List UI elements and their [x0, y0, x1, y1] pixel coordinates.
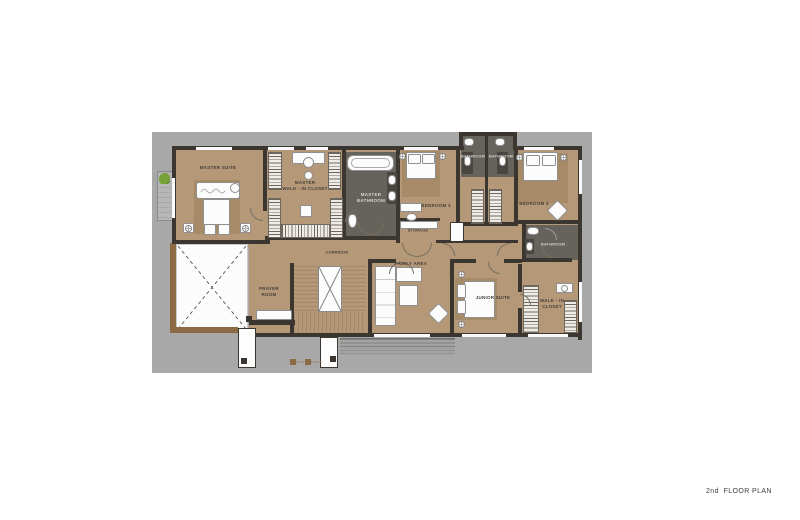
balcony-deck — [340, 338, 455, 355]
wall-segment — [450, 259, 476, 263]
window — [462, 334, 506, 337]
pillow — [542, 155, 556, 166]
lamp-icon — [458, 321, 465, 328]
stair-flight-bottom — [294, 312, 366, 333]
room-label-bedroom-4: BEDROOM 4 — [519, 201, 549, 207]
stair-flight-left — [294, 266, 318, 312]
sink — [526, 242, 533, 251]
room-label-master-bathroom: MASTER BATHROOM — [357, 192, 385, 204]
wall-segment — [249, 320, 295, 325]
window — [196, 147, 232, 150]
lamp-icon — [560, 154, 567, 161]
wall-segment — [246, 316, 252, 322]
room-label-corridor: CORRIDOR — [326, 250, 349, 255]
lamp-icon — [399, 153, 406, 160]
decor-squiggle — [200, 186, 226, 194]
wardrobe — [523, 285, 539, 333]
wall-segment — [172, 240, 270, 244]
pillow — [408, 154, 421, 164]
wardrobe — [268, 152, 282, 190]
wall-segment — [518, 308, 522, 337]
room-label-storage: STORAGE — [408, 228, 428, 233]
lamp-icon — [439, 153, 446, 160]
bathtub-basin — [351, 158, 390, 168]
basin — [561, 285, 568, 292]
wall-segment — [518, 264, 522, 292]
wall-segment — [456, 149, 460, 226]
stool — [406, 213, 417, 221]
lamp-icon — [242, 225, 249, 232]
window — [268, 147, 294, 150]
pillow — [457, 284, 466, 298]
window — [172, 178, 175, 218]
pillow — [422, 154, 435, 164]
sink — [388, 191, 396, 201]
side-table — [230, 183, 240, 193]
master-bed — [203, 199, 230, 225]
stool — [304, 171, 313, 180]
stair-well-x — [318, 266, 342, 312]
toilet — [527, 227, 539, 235]
pillow — [457, 300, 466, 314]
exterior-column — [320, 337, 338, 368]
sofa — [375, 266, 396, 326]
plan-title: 2nd FLOOR PLAN — [706, 488, 772, 495]
window — [374, 334, 430, 337]
wardrobe — [328, 152, 341, 190]
stair-flight-right — [342, 266, 366, 312]
wardrobe — [489, 189, 502, 224]
wall-segment — [368, 259, 372, 337]
pillow — [218, 224, 230, 235]
wardrobe — [268, 198, 281, 238]
room-label-junior-suite: JUNIOR SUITE — [476, 295, 511, 301]
wall-segment — [504, 259, 522, 263]
void-x-marks — [176, 244, 248, 331]
room-label-bathroom-3: BATHROOM — [461, 154, 485, 159]
wood-edge-left — [170, 243, 176, 333]
lamp-icon — [185, 225, 192, 232]
window — [404, 147, 438, 150]
corridor-cabinet — [256, 310, 292, 320]
column-pier — [330, 356, 336, 362]
beam-line — [296, 361, 322, 363]
window — [524, 147, 554, 150]
wall-segment — [522, 258, 572, 262]
wall-segment — [485, 136, 488, 225]
room-label-bathroom-4: BATHROOM — [489, 154, 513, 159]
wardrobe — [330, 198, 343, 238]
linen-cupboard — [450, 222, 464, 242]
wardrobe — [471, 189, 484, 224]
toilet — [495, 138, 505, 146]
wardrobe — [281, 224, 330, 238]
window — [579, 282, 582, 322]
room-label-master-suite: MASTER SUITE — [200, 165, 237, 171]
pillow — [526, 155, 540, 166]
wall-segment — [263, 149, 267, 211]
room-label-master-walk-in-closet: MASTER WALK - IN CLOSET — [282, 180, 327, 192]
wardrobe — [564, 300, 577, 333]
column-pier — [241, 358, 247, 364]
toilet — [464, 138, 474, 146]
wall-segment — [459, 132, 517, 136]
room-label-junior-bathroom: BATHROOM — [541, 242, 565, 247]
wall-segment — [450, 259, 454, 337]
wall-segment — [456, 222, 518, 226]
dressing-table — [400, 203, 422, 212]
window — [528, 334, 568, 337]
room-label-bedroom-3: BEDROOM 3 — [421, 203, 451, 209]
pillow — [204, 224, 216, 235]
sink — [388, 175, 396, 185]
wall-segment — [368, 259, 396, 263]
vanity-basin — [303, 157, 314, 168]
lamp-icon — [458, 271, 465, 278]
room-label-family-area: FAMILY AREA — [395, 261, 428, 267]
lamp-icon — [516, 154, 523, 161]
floor-plan-canvas: MASTER SUITE MASTER WALK - IN CLOSET MAS… — [0, 0, 800, 520]
coffee-table — [399, 285, 418, 306]
window — [579, 160, 582, 194]
closet-island — [300, 205, 312, 217]
wood-edge-bottom — [172, 327, 238, 333]
room-label-junior-walk-in-closet: WALK - IN CLOSET — [540, 298, 564, 310]
room-label-prayer-room: PRAYER ROOM — [259, 286, 279, 298]
wall-segment — [459, 132, 463, 150]
window — [306, 147, 328, 150]
